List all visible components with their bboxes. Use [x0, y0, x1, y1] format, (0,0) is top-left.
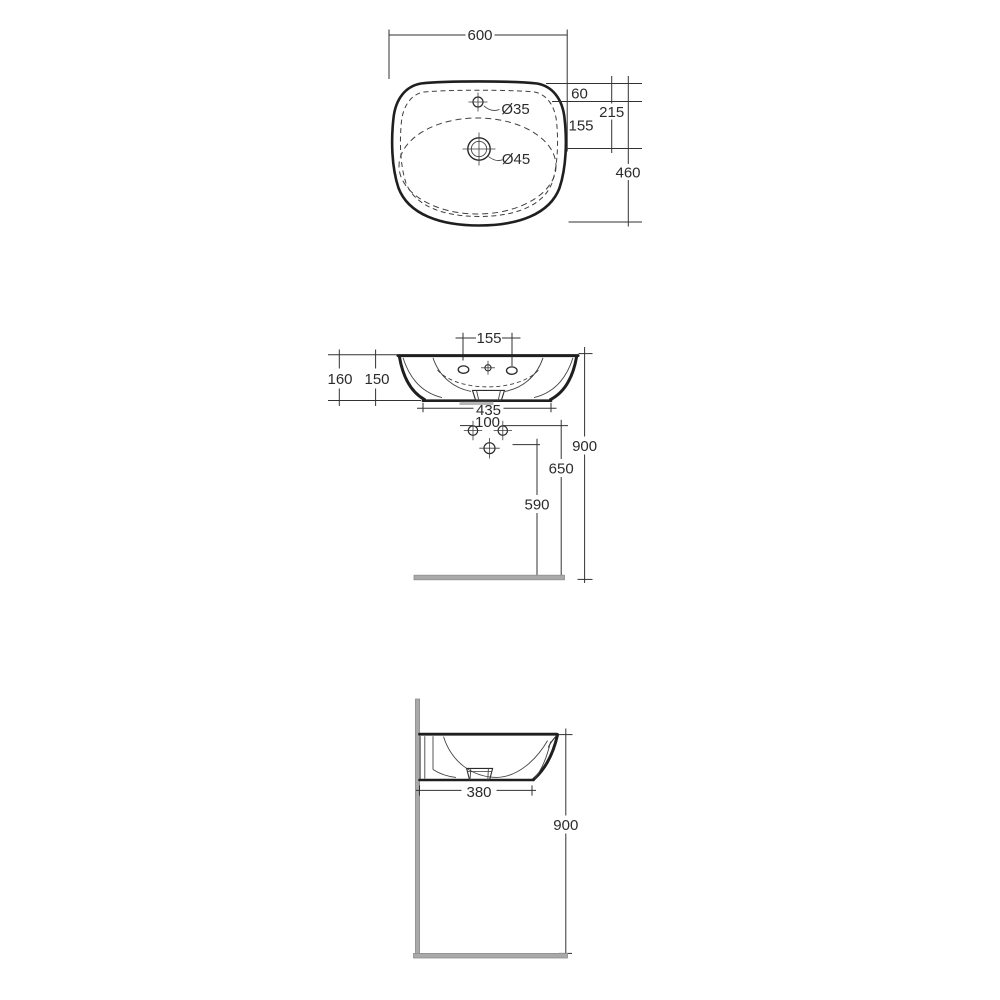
drain-hole-marker	[463, 133, 503, 166]
edge-to-tap-label: 60	[571, 85, 588, 102]
tap-holes-front	[458, 361, 517, 375]
fixing-spacing-label: 100	[475, 414, 500, 431]
waste-outlet-marker	[479, 438, 499, 458]
dim-900-front-lines	[578, 347, 593, 583]
tap-hole-diameter-label: Ø35	[501, 101, 529, 118]
fixing-height-label: 650	[549, 460, 574, 477]
washbasin-technical-drawing: 600 Ø35 Ø45	[0, 0, 1000, 1000]
wall	[415, 699, 419, 954]
floor-side	[414, 953, 568, 958]
rim-height-front-label: 900	[572, 438, 597, 455]
base-depth-label: 380	[466, 784, 491, 801]
overall-depth-label: 460	[615, 164, 640, 181]
top-view: 600 Ø35 Ø45	[389, 27, 642, 227]
bowl-outline-dashed	[399, 118, 556, 214]
plan-right-dimension-lines	[546, 76, 642, 227]
edge-to-drain-label: 215	[599, 104, 624, 121]
technical-drawing-canvas: 600 Ø35 Ø45	[0, 0, 1000, 1000]
height-body-label: 150	[364, 371, 389, 388]
drain-diameter-label: Ø45	[502, 151, 530, 168]
tap-hole-marker	[469, 93, 500, 112]
basin-interior-side	[425, 736, 551, 780]
tap-spacing-label: 155	[476, 330, 501, 347]
drain-height-label: 590	[524, 496, 549, 513]
side-view: 380 900	[414, 699, 579, 958]
rim-height-side-label: 900	[553, 817, 578, 834]
height-total-label: 160	[327, 371, 352, 388]
floor-front	[414, 575, 565, 580]
tap-to-drain-label: 155	[568, 117, 593, 134]
front-view: 155 160 150	[327, 330, 597, 583]
dim-overall-width-label: 600	[467, 27, 492, 44]
dim-900-side-lines	[558, 729, 573, 957]
